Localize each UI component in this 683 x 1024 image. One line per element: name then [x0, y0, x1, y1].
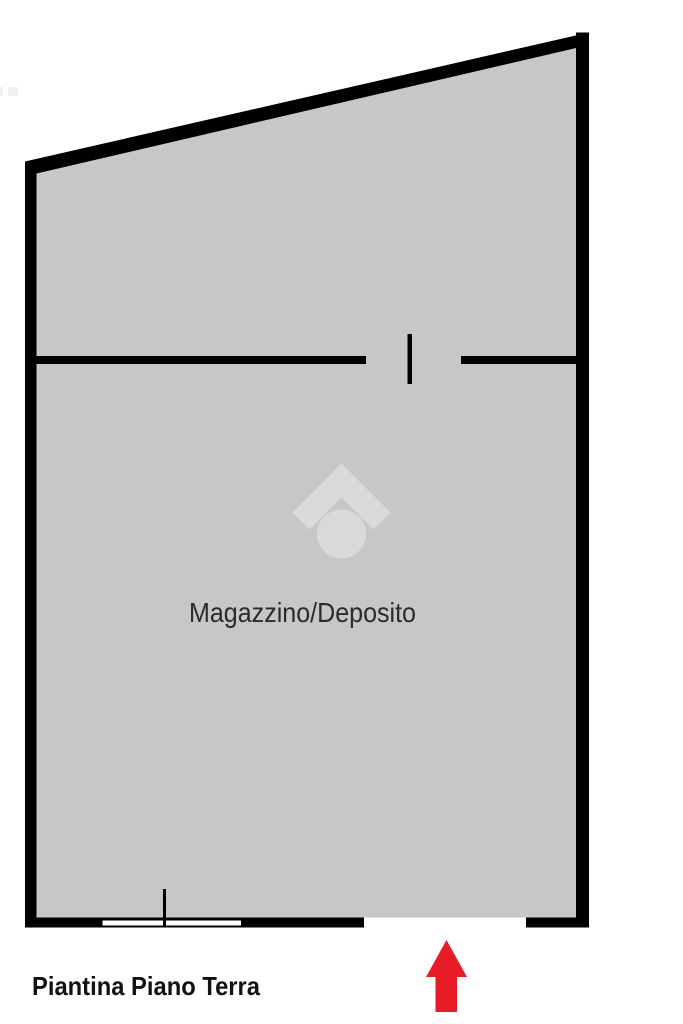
svg-text:Magazzino/Deposito: Magazzino/Deposito — [189, 597, 416, 628]
svg-text:Piantina Piano Terra: Piantina Piano Terra — [32, 971, 260, 1001]
